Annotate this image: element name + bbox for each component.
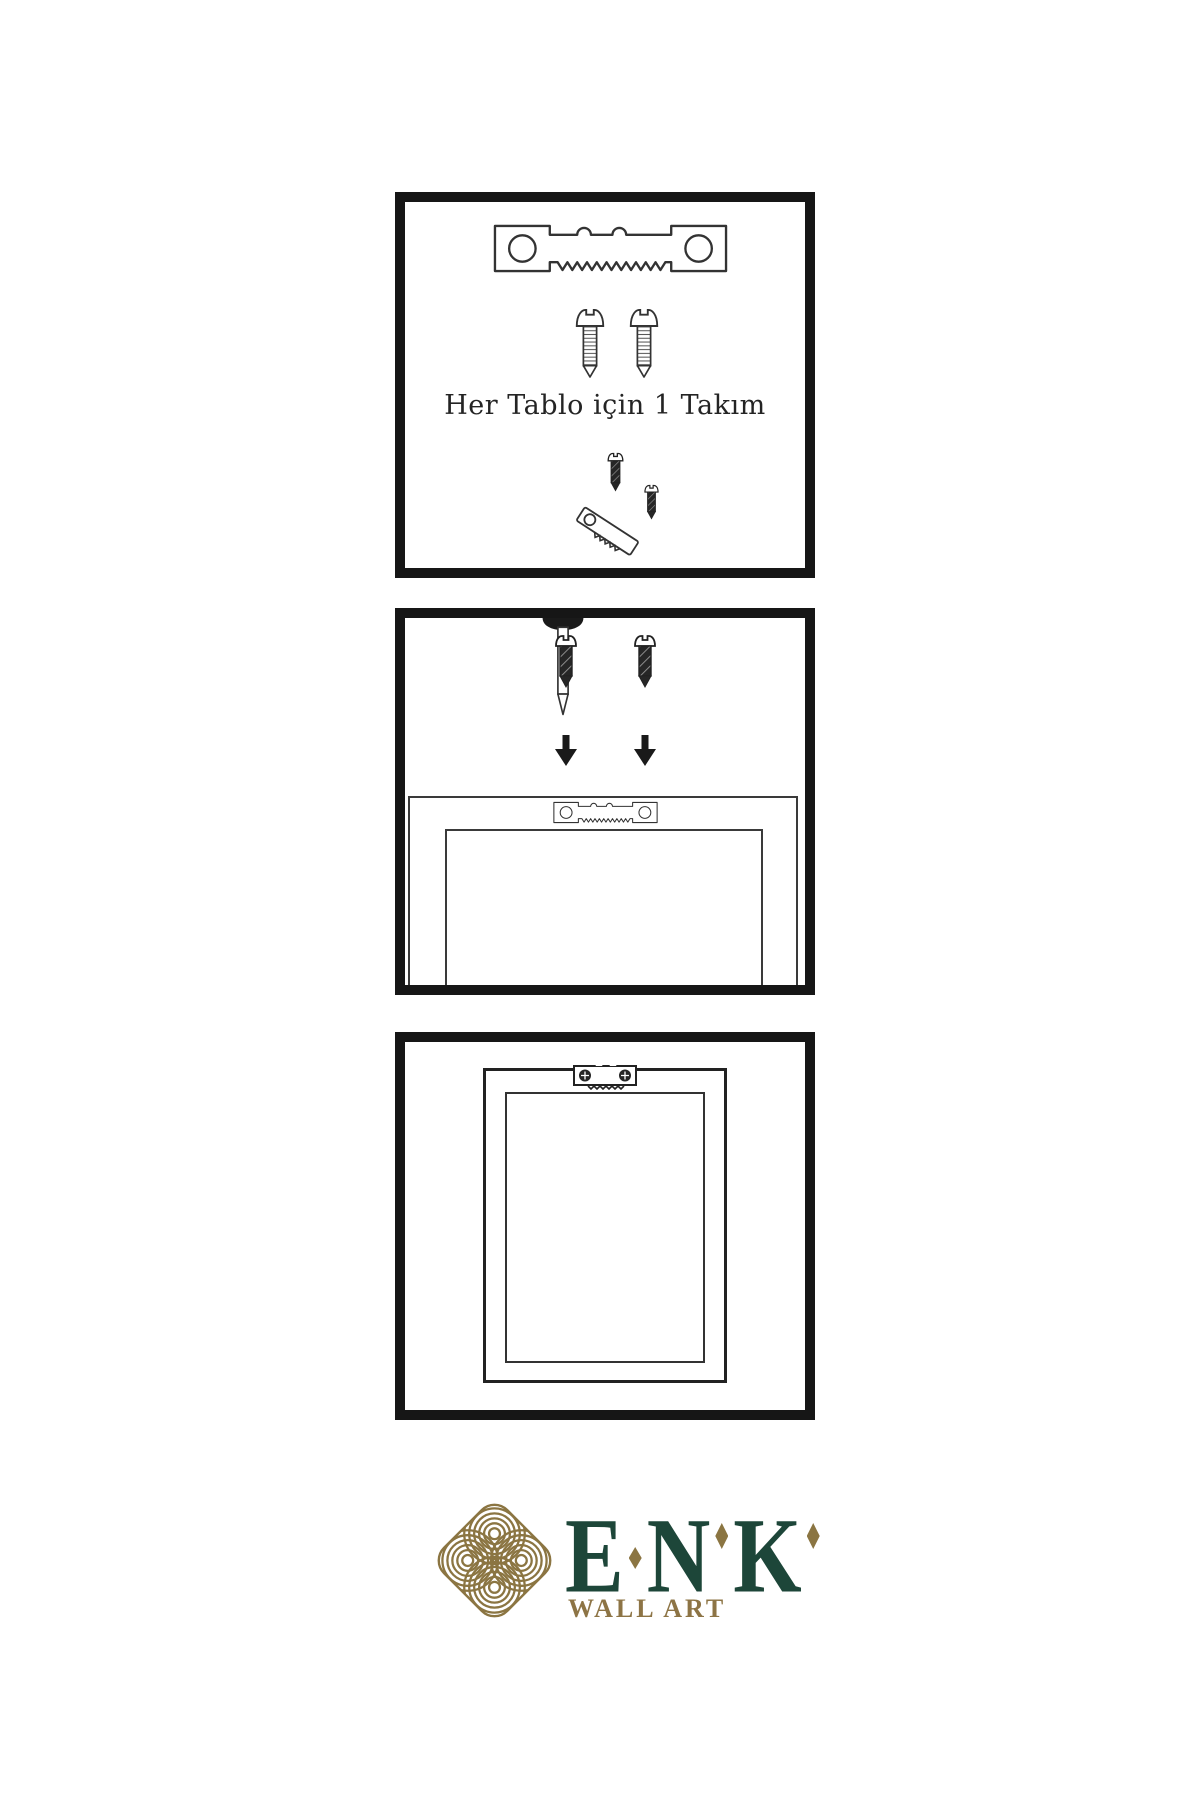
diamond-accent-icon (807, 1523, 820, 1549)
screw-icon (573, 307, 607, 379)
screw-dark-icon (553, 633, 579, 691)
sawtooth-hanger-icon (493, 223, 728, 274)
knot-logo-icon (432, 1498, 557, 1623)
arrow-down-icon (555, 735, 577, 767)
arrow-down-icon (634, 735, 656, 767)
instruction-sheet: Her Tablo için 1 Takım (0, 0, 1200, 1800)
sawtooth-hanger-on-frame-icon (553, 801, 658, 824)
hung-frame-inner (505, 1092, 705, 1363)
screw-icon (627, 307, 661, 379)
brand-subtitle: WALL ART (568, 1594, 726, 1624)
diamond-accent-icon (629, 1547, 642, 1569)
frame-back-inner (445, 829, 763, 995)
kit-caption: Her Tablo için 1 Takım (405, 390, 805, 421)
step-panel-hung-frame (395, 1032, 815, 1420)
screw-dark-icon (632, 633, 658, 691)
screw-into-hanger-icon (573, 452, 683, 556)
diamond-accent-icon (715, 1523, 728, 1549)
brand-letter: K (733, 1504, 801, 1611)
step-panel-mounting (395, 608, 815, 995)
hanger-installed-icon (573, 1065, 637, 1090)
step-panel-kit: Her Tablo için 1 Takım (395, 192, 815, 578)
